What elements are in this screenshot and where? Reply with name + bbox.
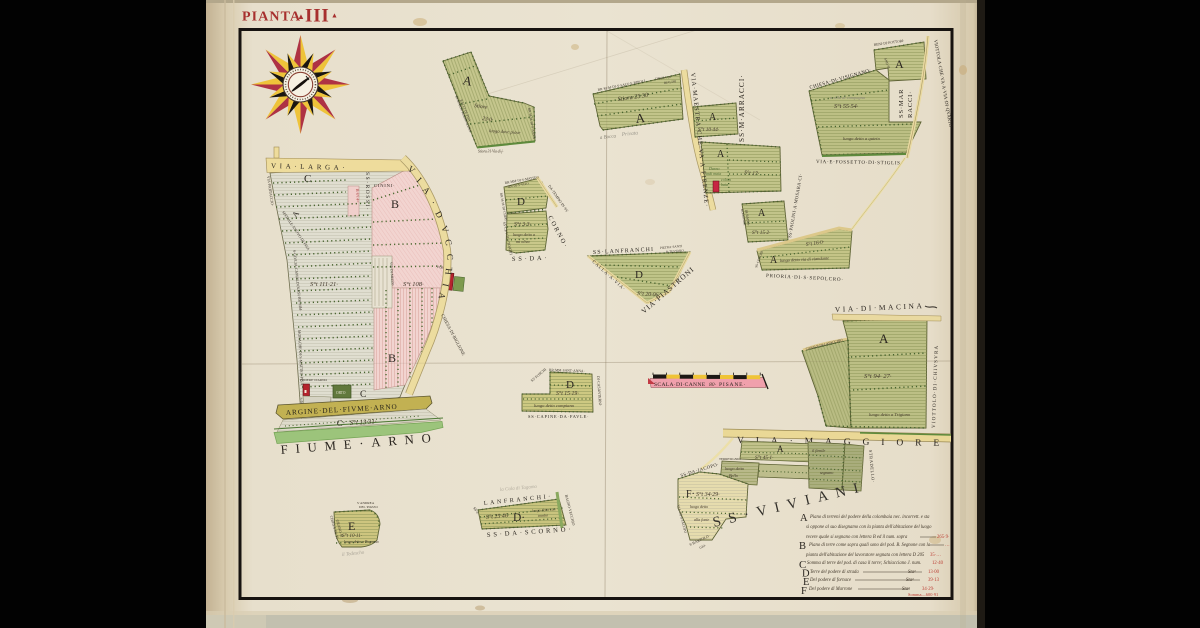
svg-text:S°t 15·19·: S°t 15·19· — [556, 390, 579, 397]
svg-text:Del podere di Marrone: Del podere di Marrone — [808, 587, 852, 592]
svg-text:Terre del podere di strada: Terre del podere di strada — [810, 570, 859, 575]
svg-text:F·: F· — [686, 489, 695, 500]
svg-text:PISANE·: PISANE· — [719, 382, 746, 388]
svg-text:pianta dell'abitazione del lav: pianta dell'abitazione del lavoratore se… — [805, 553, 925, 558]
svg-text:D: D — [517, 196, 525, 208]
svg-text:segnano: segnano — [820, 470, 833, 475]
svg-text:RACCI·: RACCI· — [907, 91, 914, 118]
svg-text:luogo detto: luogo detto — [725, 466, 744, 471]
svg-text:Somma di terre del pod. di cas: Somma di terre del pod. di casa il torre… — [807, 561, 921, 566]
svg-text:Somma—600·91: Somma—600·91 — [908, 592, 938, 597]
svg-text:A: A — [717, 149, 725, 160]
svg-text:S°t 108·: S°t 108· — [403, 281, 424, 288]
svg-text:C: C — [360, 390, 366, 400]
svg-text:luogo detto: luogo detto — [690, 504, 708, 509]
svg-text:luogo detto a Pugnano: luogo detto a Pugnano — [344, 540, 379, 544]
svg-text:SS·CAPINE·DA·FAVLE·: SS·CAPINE·DA·FAVLE· — [528, 414, 589, 419]
svg-text:D·: D· — [513, 512, 525, 524]
svg-text:Sta³: Sta³ — [906, 577, 914, 583]
svg-text:C: C — [445, 254, 455, 260]
svg-text:S°t 34·29·: S°t 34·29· — [696, 491, 720, 498]
svg-text:CININI·: CININI· — [374, 183, 395, 188]
svg-text:▲: ▲ — [297, 12, 305, 21]
svg-text:A: A — [800, 513, 808, 524]
svg-text:TERRESIGNIO·: TERRESIGNIO· — [719, 457, 742, 461]
svg-text:Piano di terre come sopra qual: Piano di terre come sopra quali sono del… — [808, 543, 931, 548]
svg-text:baia: baia — [721, 182, 728, 187]
svg-text:alla fonte: alla fonte — [694, 517, 709, 522]
svg-text:▲: ▲ — [331, 12, 338, 20]
svg-text:S°t 111·21·: S°t 111·21· — [310, 281, 338, 288]
svg-text:Bello: Bello — [729, 473, 738, 478]
svg-text:…: … — [945, 543, 950, 548]
svg-text:SCALA·DI·CANNE: SCALA·DI·CANNE — [654, 382, 706, 388]
svg-text:80·: 80· — [709, 382, 717, 388]
svg-text:S°t 10·11·: S°t 10·11· — [342, 532, 363, 539]
svg-text:A: A — [758, 208, 766, 219]
svg-text:E: E — [348, 519, 355, 533]
svg-text:SS·DA·: SS·DA· — [512, 255, 550, 263]
svg-text:A: A — [879, 331, 889, 346]
svg-text:Piano di terreni del podere de: Piano di terreni del podere della colomb… — [809, 515, 930, 520]
svg-text:S°t 94· 27·: S°t 94· 27· — [864, 373, 892, 380]
svg-text:luogo detto a quieto: luogo detto a quieto — [843, 136, 881, 141]
svg-text:il fienile: il fienile — [812, 448, 825, 453]
svg-text:A: A — [770, 255, 778, 266]
svg-text:S°t 15·2·: S°t 15·2· — [752, 229, 771, 236]
svg-text:C: C — [304, 173, 311, 185]
svg-text:B: B — [799, 541, 806, 552]
svg-text:B: B — [391, 197, 399, 211]
svg-text:SS·ROSSI·: SS·ROSSI· — [364, 172, 370, 211]
svg-text:PIANTA: PIANTA — [242, 10, 301, 25]
svg-text:PODERE·D'ARNO: PODERE·D'ARNO — [300, 378, 328, 382]
svg-text:si oppone al suo disegnamo con: si oppone al suo disegnamo con la pianta… — [806, 525, 932, 530]
svg-text:S°t 55·54·: S°t 55·54· — [834, 103, 859, 110]
svg-text:35·…: 35·… — [930, 553, 941, 558]
svg-text:D: D — [635, 269, 643, 281]
svg-text:luogo detto a Trigiano: luogo detto a Trigiano — [869, 412, 911, 417]
svg-text:ORTO: ORTO — [336, 391, 346, 395]
svg-text:D: D — [566, 379, 574, 391]
svg-text:luogo detto compiano: luogo detto compiano — [534, 403, 575, 408]
svg-text:S°t 3·3·: S°t 3·3· — [514, 221, 532, 228]
svg-text:S°t 45·1·: S°t 45·1· — [755, 454, 774, 461]
svg-text:III: III — [305, 6, 330, 27]
svg-text:A: A — [895, 57, 904, 71]
svg-text:A: A — [777, 444, 784, 454]
svg-text:A: A — [709, 112, 717, 123]
svg-text:a villa di campagna: a villa di campagna — [830, 95, 866, 100]
svg-text:Stiora·31·Via·di·j·: Stiora·31·Via·di·j· — [478, 150, 503, 154]
svg-text:SS·M·ARRACCI·: SS·M·ARRACCI· — [738, 74, 746, 142]
svg-text:mi oliva: mi oliva — [516, 239, 530, 244]
svg-text:265·9·: 265·9· — [937, 535, 950, 540]
svg-text:B·S°t 4=: B·S°t 4= — [355, 189, 359, 203]
svg-text:tronba: tronba — [538, 513, 548, 518]
svg-text:luogo detto a: luogo detto a — [513, 232, 535, 237]
svg-text:DEL·POZZO: DEL·POZZO — [359, 505, 378, 509]
svg-text:39·13: 39·13 — [928, 578, 940, 583]
svg-text:Del podere di fornace: Del podere di fornace — [809, 578, 851, 583]
svg-text:recere quale si segnano con le: recere quale si segnano con lettera B ed… — [806, 535, 908, 540]
svg-text:indi maia: indi maia — [706, 171, 721, 176]
svg-text:SS·MAR: SS·MAR — [898, 89, 905, 118]
svg-text:13·00: 13·00 — [928, 570, 940, 575]
svg-text:C·: C· — [337, 417, 346, 428]
svg-text:F: F — [801, 586, 807, 597]
svg-text:12·40: 12·40 — [932, 561, 944, 566]
svg-text:Sta³: Sta³ — [908, 569, 916, 575]
